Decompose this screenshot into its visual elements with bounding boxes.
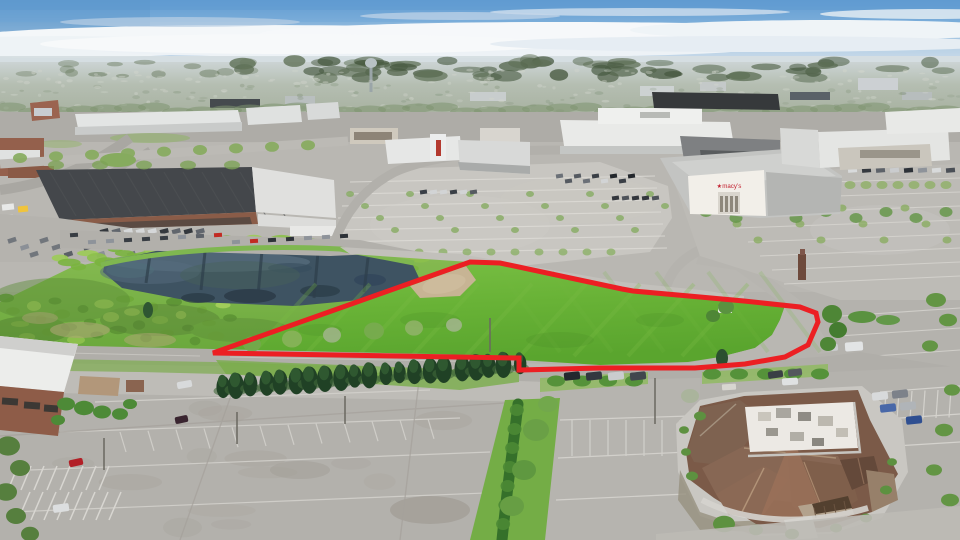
svg-text:★macy’s: ★macy’s [717, 183, 742, 190]
